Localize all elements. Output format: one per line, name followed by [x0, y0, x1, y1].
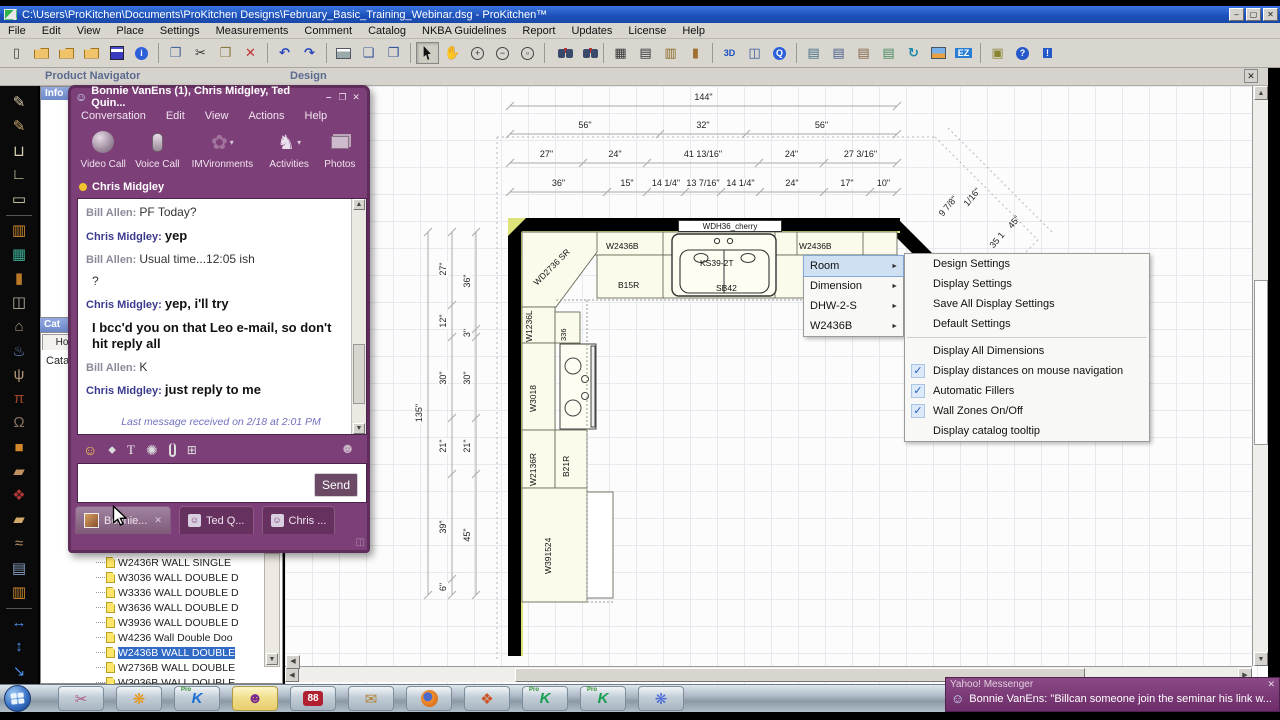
app-flower-blue-taskbar-button[interactable]: ❋: [638, 686, 684, 711]
elevation-view-icon[interactable]: ▥: [659, 42, 682, 64]
status-dot: [79, 183, 87, 191]
cut-icon[interactable]: ✂: [189, 42, 212, 64]
place-plumbing-icon[interactable]: ♨: [7, 339, 31, 362]
chat-tab-2[interactable]: ☺Ted Q...: [179, 506, 254, 534]
window-controls: ‒▢✕: [1229, 8, 1278, 21]
submenu-arrow-icon: ►: [891, 323, 898, 330]
open-icon[interactable]: [30, 42, 53, 64]
report-settings-icon[interactable]: ▤: [802, 42, 825, 64]
mail-taskbar-button[interactable]: ✉: [348, 686, 394, 711]
messenger-smiley-icon: ☺: [75, 90, 87, 104]
yahoo-messenger-taskbar-button[interactable]: ☻: [232, 686, 278, 711]
manual-icon[interactable]: ?: [1011, 42, 1034, 64]
minimize-button[interactable]: ‒: [1229, 8, 1244, 21]
catalog-item[interactable]: W3336 WALL DOUBLE D: [96, 585, 263, 600]
settings-menu-item[interactable]: Design Settings: [905, 254, 1149, 274]
document-icon: [106, 602, 115, 613]
chat-tool-voice-call[interactable]: Voice Call: [129, 127, 185, 170]
help-run-icon[interactable]: !: [1036, 42, 1059, 64]
catalog-item[interactable]: W2736B WALL DOUBLE: [96, 660, 263, 675]
chat-tool-activities[interactable]: ♞▾Activities: [260, 127, 319, 170]
place-valance-icon[interactable]: ≈: [7, 532, 31, 555]
product-navigator-title: Product Navigator: [45, 70, 140, 82]
scroll-up-arrow[interactable]: ▲: [1254, 86, 1268, 100]
document-icon: [106, 557, 115, 568]
chat-close-button[interactable]: ✕: [349, 92, 363, 103]
catalog-tree: W2436R WALL SINGLEW3036 WALL DOUBLE DW33…: [96, 555, 263, 684]
app-flower-blue-icon: ❋: [655, 690, 668, 708]
attach-file-icon[interactable]: [169, 443, 176, 457]
tab-close-icon[interactable]: ✕: [154, 515, 162, 526]
design-view-title: Design: [290, 70, 327, 82]
chat-message-area[interactable]: Bill Allen: PF Today?Chris Midgley: yepB…: [77, 198, 367, 435]
settings-menu-item[interactable]: Save All Display Settings: [905, 294, 1149, 314]
scale-design-icon[interactable]: ↘: [7, 660, 31, 683]
context-menu-item[interactable]: Dimension►: [804, 276, 903, 296]
place-window-icon[interactable]: ▦: [7, 243, 31, 266]
catalog-item[interactable]: W3036B WALL DOUBLE: [96, 675, 263, 684]
settings-menu-item[interactable]: ✓Display distances on mouse navigation: [905, 361, 1149, 381]
document-icon: [106, 632, 115, 643]
chat-scrollbar[interactable]: ▲ ▼: [351, 199, 366, 434]
letterbox-bottom: [0, 712, 1280, 720]
notification-text: Bonnie VanEns: "Billcan someone join the…: [969, 693, 1272, 705]
chat-message: Chris Midgley: yep: [86, 228, 346, 245]
find-icon[interactable]: [550, 42, 573, 64]
place-box-icon[interactable]: ■: [7, 436, 31, 459]
redo-icon[interactable]: ↷: [298, 42, 321, 64]
chat-input-toolbar: ☺ ⬥ T ✺ ⊞: [77, 438, 367, 462]
view-3d-icon[interactable]: 3D: [718, 42, 741, 64]
scroll-down-arrow[interactable]: ▼: [353, 423, 365, 434]
photos-icon: [331, 127, 349, 157]
chat-sender: Chris Midgley:: [86, 385, 165, 397]
panorama-view-icon[interactable]: ◫: [743, 42, 766, 64]
smiley-icon: ☺: [188, 514, 201, 527]
menu-file[interactable]: File: [0, 24, 34, 38]
chat-status-name: Chris Midgley: [92, 181, 164, 193]
app-88-taskbar-button[interactable]: 88: [290, 686, 336, 711]
place-cabinet-icon[interactable]: ▥: [7, 219, 31, 242]
chat-message: Bill Allen: PF Today?: [86, 205, 346, 221]
about-icon[interactable]: i: [130, 42, 153, 64]
dock-header-strip: Product Navigator Design ✕: [0, 68, 1268, 86]
place-molding-icon[interactable]: ▰: [7, 460, 31, 483]
menu-catalog[interactable]: Catalog: [360, 24, 414, 38]
chat-sender: Chris Midgley:: [86, 231, 165, 243]
checkmark-icon: ✓: [911, 404, 925, 418]
catalog-scrollbar[interactable]: ▼: [264, 553, 280, 667]
chat-menu-view[interactable]: View: [205, 110, 229, 122]
new-file-icon[interactable]: ▯: [5, 42, 28, 64]
notification-title: Yahoo! Messenger: [946, 678, 1279, 691]
settings-menu-item[interactable]: ✓Automatic Fillers: [905, 381, 1149, 401]
context-menu-item[interactable]: Room►: [804, 256, 903, 276]
activities-icon: ♞▾: [277, 127, 301, 157]
video-call-icon: [92, 127, 114, 157]
context-menu-item[interactable]: DHW-2-S►: [804, 296, 903, 316]
save-icon[interactable]: [105, 42, 128, 64]
context-menu-item[interactable]: W2436B►: [804, 316, 903, 336]
app-flower-orange-taskbar-button[interactable]: ❋: [116, 686, 162, 711]
prokitchen-icon: K: [598, 690, 609, 707]
screen: C:\Users\ProKitchen\Documents\ProKitchen…: [0, 0, 1280, 720]
zoom-out-icon[interactable]: −: [491, 42, 514, 64]
select-pointer-icon[interactable]: [416, 42, 439, 64]
chat-message: Chris Midgley: yep, i'll try: [86, 296, 346, 313]
chat-menu-conversation[interactable]: Conversation: [81, 110, 146, 122]
imvironments-icon: ✿▾: [211, 127, 234, 157]
draw-wall-icon[interactable]: ✎: [7, 91, 31, 114]
undo-icon[interactable]: ↶: [273, 42, 296, 64]
dimension-vertical-icon[interactable]: ↕: [7, 636, 31, 659]
media-gallery-icon: ❖: [480, 690, 493, 708]
buzz-icon[interactable]: ✺: [146, 442, 158, 459]
chat-toolbar: Video CallVoice Call✿▾IMVironments♞▾Acti…: [71, 125, 367, 179]
scroll-down-arrow[interactable]: ▼: [266, 653, 278, 665]
chat-sender: Chris Midgley:: [86, 299, 165, 311]
yahoo-notification-popup[interactable]: Yahoo! Messenger ✕ ☺ Bonnie VanEns: "Bil…: [945, 677, 1280, 712]
scroll-left-arrow[interactable]: ◀: [285, 668, 299, 682]
elevation-cabinets-icon[interactable]: ▥: [7, 580, 31, 603]
ez-quote-icon[interactable]: EZ: [952, 42, 975, 64]
main-toolbar: ▯i❐✂❒✕↶↷❏❐✋+−▫▦▤▥▮3D◫Q▤▤▤▤↻EZ▣?!: [0, 39, 1280, 68]
send-button[interactable]: Send: [314, 473, 358, 497]
menu-nkba-guidelines[interactable]: NKBA Guidelines: [414, 24, 514, 38]
chat-last-message-note: Last message received on 2/18 at 2:01 PM: [101, 416, 341, 428]
dropdown-caret-icon: ▾: [230, 138, 234, 147]
chat-input-box[interactable]: Send: [77, 463, 367, 503]
menu-settings[interactable]: Settings: [152, 24, 208, 38]
chat-title-text: Bonnie VanEns (1), Chris Midgley, Ted Qu…: [91, 85, 322, 109]
dimension-horizontal-icon[interactable]: ↔: [7, 612, 31, 635]
paste-icon[interactable]: ❒: [214, 42, 237, 64]
chat-title-bar[interactable]: ☺ Bonnie VanEns (1), Chris Midgley, Ted …: [71, 88, 367, 106]
window-title: C:\Users\ProKitchen\Documents\ProKitchen…: [22, 9, 547, 21]
place-table-icon[interactable]: π: [7, 387, 31, 410]
catalog-item[interactable]: W2436R WALL SINGLE: [96, 555, 263, 570]
floor-covering-icon[interactable]: ❖: [7, 484, 31, 507]
mail-icon: ✉: [365, 690, 378, 708]
place-hood-icon[interactable]: ⌂: [7, 315, 31, 338]
import-design-icon[interactable]: [55, 42, 78, 64]
chat-tool-video-call[interactable]: Video Call: [77, 127, 129, 170]
quicktime-view-icon[interactable]: Q: [768, 42, 791, 64]
menu-separator: [907, 337, 1147, 338]
catalog-scroll-left-arrow[interactable]: ◀: [286, 655, 300, 669]
chat-message: Chris Midgley: just reply to me: [86, 382, 346, 399]
windows-logo-icon: [10, 692, 24, 704]
chat-menu-bar: ConversationEditViewActionsHelp: [71, 106, 367, 125]
chat-message: ?: [86, 274, 346, 289]
scroll-down-arrow[interactable]: ▼: [1254, 652, 1268, 666]
firefox-taskbar-button[interactable]: [406, 686, 452, 711]
app-flower-orange-icon: ❋: [133, 690, 146, 708]
document-icon: [106, 677, 115, 684]
menu-measurements[interactable]: Measurements: [208, 24, 297, 38]
resize-grip[interactable]: ◫: [356, 537, 365, 548]
room-settings-menu: Design SettingsDisplay SettingsSave All …: [904, 253, 1150, 442]
copy-icon[interactable]: ❐: [164, 42, 187, 64]
snipping-tool-icon: ✂: [75, 690, 88, 708]
dropdown-caret-icon: ▾: [297, 138, 301, 147]
place-decor-icon[interactable]: Ω: [7, 412, 31, 435]
place-door-icon[interactable]: ▮: [7, 267, 31, 290]
scrollbar-thumb[interactable]: [353, 344, 365, 404]
wall-shape-l-icon[interactable]: ∟: [7, 163, 31, 186]
letterbox-right: [1268, 68, 1280, 684]
submenu-arrow-icon: ►: [891, 303, 898, 310]
notification-close-icon[interactable]: ✕: [1267, 679, 1275, 690]
settings-menu-item[interactable]: Display All Dimensions: [905, 341, 1149, 361]
checkmark-icon: ✓: [911, 384, 925, 398]
catalog-label: Cata: [46, 355, 69, 367]
catalog-docs-icon[interactable]: ▤: [877, 42, 900, 64]
floor-plan-view-icon[interactable]: ▤: [634, 42, 657, 64]
chat-menu-help[interactable]: Help: [305, 110, 328, 122]
audible-icon[interactable]: ⬥: [108, 444, 116, 457]
render-image-icon[interactable]: [927, 42, 950, 64]
design-vertical-scrollbar[interactable]: ▲ ▼: [1252, 86, 1268, 666]
smiley-icon: ☺: [271, 514, 284, 527]
menu-help[interactable]: Help: [674, 24, 713, 38]
yahoo-messenger-icon: ☻: [247, 690, 263, 707]
chat-minimize-button[interactable]: ‒: [322, 92, 336, 102]
settings-menu-item[interactable]: Default Settings: [905, 314, 1149, 334]
start-button[interactable]: [4, 685, 31, 712]
menu-view[interactable]: View: [69, 24, 109, 38]
chat-tool-photos[interactable]: Photos: [319, 127, 361, 170]
wall-shape-u-icon[interactable]: ⊔: [7, 139, 31, 162]
prokitchen-main-taskbar-button[interactable]: ProK: [174, 686, 220, 711]
mouse-cursor: [112, 505, 130, 527]
document-icon: [106, 662, 115, 673]
design-close-button[interactable]: ✕: [1244, 69, 1258, 83]
text-format-icon[interactable]: T: [127, 442, 135, 458]
chat-menu-edit[interactable]: Edit: [166, 110, 185, 122]
chat-message: Bill Allen: Usual time...12:05 ish: [86, 252, 346, 268]
emoticon-icon[interactable]: ☺: [83, 442, 97, 458]
chat-sender: Bill Allen:: [86, 207, 139, 219]
maximize-button[interactable]: ▢: [1246, 8, 1261, 21]
submenu-arrow-icon: ►: [891, 263, 898, 270]
yahoo-messenger-window: ☺ Bonnie VanEns (1), Chris Midgley, Ted …: [68, 85, 370, 553]
catalog-item[interactable]: W3036 WALL DOUBLE D: [96, 570, 263, 585]
settings-menu-item[interactable]: Display catalog tooltip: [905, 421, 1149, 441]
contact-panel-icon[interactable]: ☻: [340, 440, 355, 456]
copy-design-icon[interactable]: ▤: [852, 42, 875, 64]
place-tall-cabinet-icon[interactable]: ◫: [7, 291, 31, 314]
menu-comment[interactable]: Comment: [296, 24, 360, 38]
firefox-icon: [421, 690, 438, 707]
chat-sender: Bill Allen:: [86, 362, 139, 374]
checkmark-icon: ✓: [911, 364, 925, 378]
zoom-in-icon[interactable]: +: [466, 42, 489, 64]
tool-palette: ✎✎⊔∟▭▥▦▮◫⌂♨ψπΩ■▰❖▰≈▤▥↔↕↘: [0, 86, 38, 684]
voice-call-icon: [152, 127, 163, 157]
zoom-window-icon[interactable]: ▫: [516, 42, 539, 64]
scroll-up-arrow[interactable]: ▲: [353, 199, 365, 210]
prokitchen-2-taskbar-button[interactable]: ProK: [522, 686, 568, 711]
place-counter-icon[interactable]: ▰: [7, 508, 31, 531]
prokitchen-icon: K: [540, 690, 551, 707]
prokitchen-3-taskbar-button[interactable]: ProK: [580, 686, 626, 711]
room-rectangle-icon[interactable]: ▭: [7, 188, 31, 211]
avatar: [84, 513, 99, 528]
photo-share-icon[interactable]: ⊞: [187, 443, 197, 457]
close-button[interactable]: ✕: [1263, 8, 1278, 21]
print-icon[interactable]: [332, 42, 355, 64]
grid-toggle-icon[interactable]: ▦: [609, 42, 632, 64]
item-report-icon[interactable]: ▤: [7, 556, 31, 579]
submenu-arrow-icon: ►: [891, 283, 898, 290]
messenger-smiley-icon: ☺: [951, 691, 964, 706]
tip-light-icon[interactable]: ▣: [986, 42, 1009, 64]
sync-catalogs-icon[interactable]: ↻: [902, 42, 925, 64]
chat-sender: Bill Allen:: [86, 254, 139, 266]
menu-bar: FileEditViewPlaceSettingsMeasurementsCom…: [0, 23, 1280, 39]
scrollbar-thumb[interactable]: [1254, 280, 1268, 445]
catalog-item[interactable]: W2436B WALL DOUBLE: [96, 645, 263, 660]
find-replace-icon[interactable]: [575, 42, 598, 64]
document-icon: [106, 617, 115, 628]
catalog-item[interactable]: W3936 WALL DOUBLE D: [96, 615, 263, 630]
settings-menu-item[interactable]: Display Settings: [905, 274, 1149, 294]
menu-edit[interactable]: Edit: [34, 24, 69, 38]
media-gallery-taskbar-button[interactable]: ❖: [464, 686, 510, 711]
document-icon: [106, 572, 115, 583]
delete-icon[interactable]: ✕: [239, 42, 262, 64]
document-icon: [106, 587, 115, 598]
export-design-icon[interactable]: [80, 42, 103, 64]
snipping-tool-taskbar-button[interactable]: ✂: [58, 686, 104, 711]
place-lighting-icon[interactable]: ψ: [7, 363, 31, 386]
chat-tool-imvironments[interactable]: ✿▾IMVironments: [185, 127, 259, 170]
settings-menu-item[interactable]: ✓Wall Zones On/Off: [905, 401, 1149, 421]
pan-hand-icon[interactable]: ✋: [441, 42, 464, 64]
draw-wall-arc-icon[interactable]: ✎: [7, 115, 31, 138]
catalog-item[interactable]: W3636 WALL DOUBLE D: [96, 600, 263, 615]
app-icon: [4, 9, 17, 20]
prokitchen-icon: K: [192, 690, 203, 707]
customer-info-icon[interactable]: ▤: [827, 42, 850, 64]
chat-message: I bcc'd you on that Leo e-mail, so don't…: [86, 320, 346, 353]
chat-maximize-button[interactable]: ❐: [336, 92, 350, 103]
print-preview-icon[interactable]: ❏: [357, 42, 380, 64]
title-bar: C:\Users\ProKitchen\Documents\ProKitchen…: [0, 6, 1280, 23]
menu-updates[interactable]: Updates: [563, 24, 620, 38]
page-setup-icon[interactable]: ❐: [382, 42, 405, 64]
wall-view-icon[interactable]: ▮: [684, 42, 707, 64]
catalog-item[interactable]: W4236 Wall Double Doo: [96, 630, 263, 645]
menu-report[interactable]: Report: [514, 24, 563, 38]
chat-message: Bill Allen: K: [86, 360, 346, 376]
document-icon: [106, 647, 115, 658]
menu-license[interactable]: License: [620, 24, 674, 38]
object-context-menu: Room►Dimension►DHW-2-S►W2436B►: [803, 255, 904, 337]
app-88-icon: 88: [303, 691, 322, 706]
chat-menu-actions[interactable]: Actions: [248, 110, 284, 122]
chat-status-row: Chris Midgley: [71, 179, 367, 195]
menu-place[interactable]: Place: [108, 24, 152, 38]
chat-tab-3[interactable]: ☺Chris ...: [262, 506, 336, 534]
